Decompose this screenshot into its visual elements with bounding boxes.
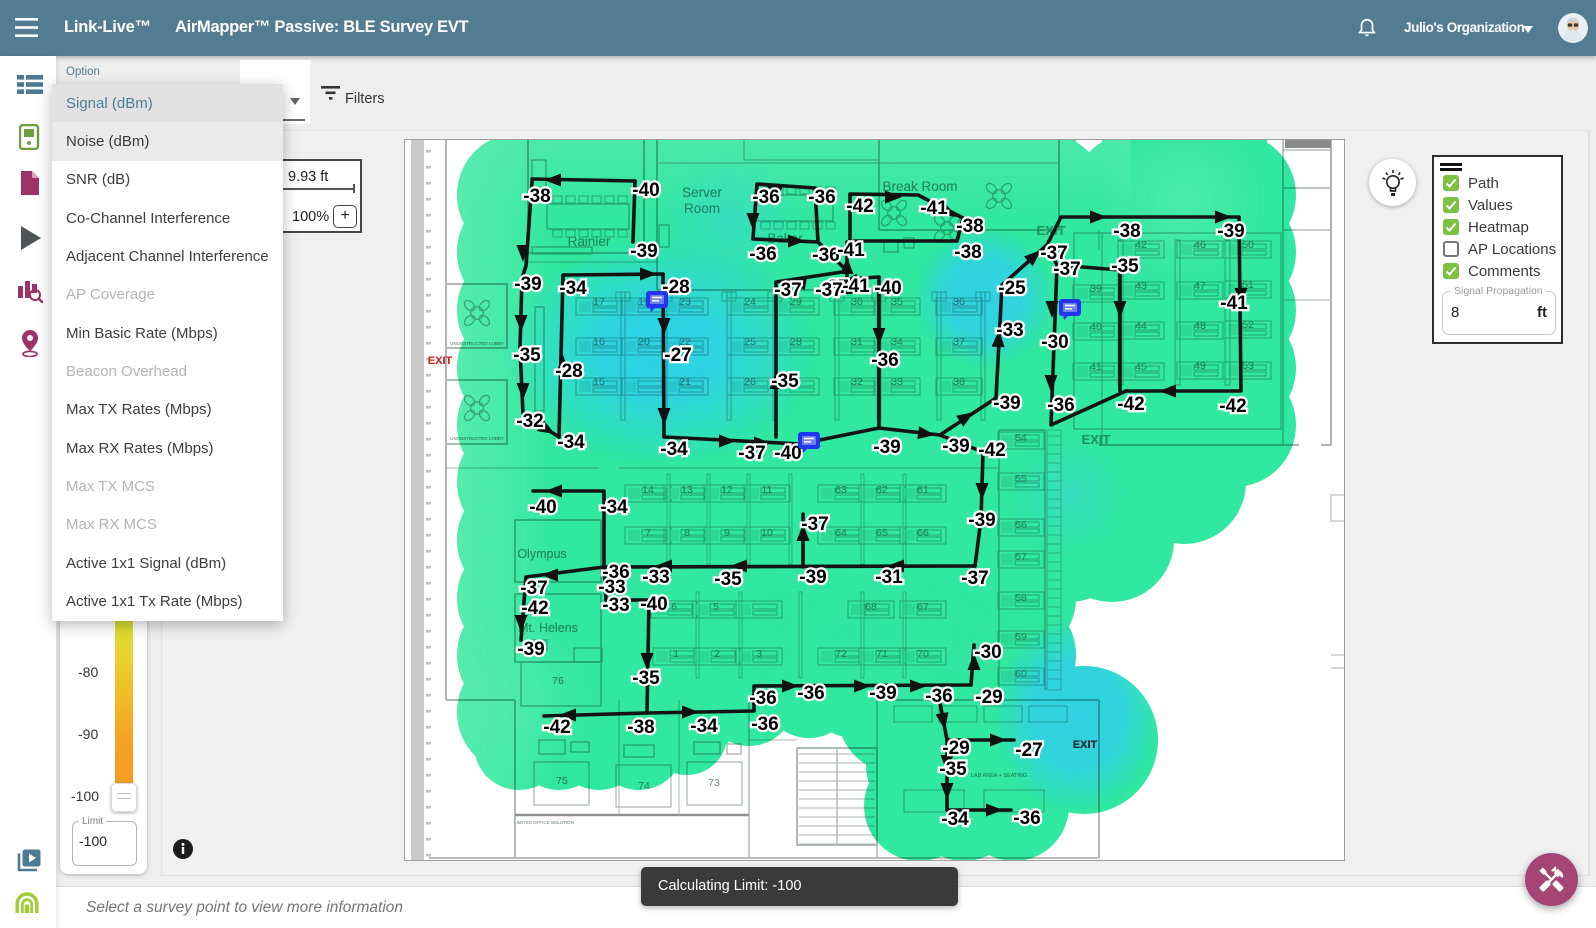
svg-text:-35: -35	[939, 759, 967, 780]
svg-text:-40: -40	[774, 443, 801, 464]
svg-text:-35: -35	[714, 569, 742, 590]
svg-text:-37: -37	[738, 443, 765, 464]
svg-text:-28: -28	[555, 361, 582, 382]
svg-text:-34: -34	[690, 716, 718, 737]
svg-text:-41: -41	[842, 276, 870, 297]
svg-text:-35: -35	[771, 371, 799, 392]
svg-text:-34: -34	[557, 432, 585, 453]
svg-text:-39: -39	[1217, 221, 1244, 242]
svg-text:-39: -39	[630, 241, 657, 262]
svg-text:-39: -39	[873, 437, 900, 458]
svg-text:-42: -42	[1117, 394, 1144, 415]
svg-text:-39: -39	[799, 567, 826, 588]
svg-text:-37: -37	[961, 568, 988, 589]
svg-text:-30: -30	[1041, 332, 1068, 353]
svg-text:-38: -38	[956, 216, 983, 237]
svg-text:-31: -31	[875, 567, 903, 588]
svg-text:-35: -35	[513, 345, 541, 366]
svg-text:-37: -37	[1053, 259, 1080, 280]
svg-text:-38: -38	[627, 717, 654, 738]
svg-text:-36: -36	[752, 187, 779, 208]
svg-text:-29: -29	[975, 687, 1002, 708]
svg-text:-33: -33	[602, 595, 629, 616]
svg-text:-38: -38	[954, 242, 981, 263]
svg-text:-42: -42	[978, 440, 1005, 461]
svg-text:-36: -36	[1047, 395, 1074, 416]
svg-text:73: 73	[708, 777, 720, 789]
svg-text:-27: -27	[664, 345, 691, 366]
svg-text:EXIT: EXIT	[428, 355, 453, 367]
svg-text:-40: -40	[632, 180, 659, 201]
svg-text:-33: -33	[642, 567, 669, 588]
svg-text:LIMITED OFFICE SOLUTION: LIMITED OFFICE SOLUTION	[514, 820, 574, 825]
svg-text:-25: -25	[998, 278, 1026, 299]
svg-text:-37: -37	[801, 514, 828, 535]
svg-text:-29: -29	[942, 738, 969, 759]
svg-text:-38: -38	[523, 186, 550, 207]
svg-text:-36: -36	[812, 245, 839, 266]
svg-text:-36: -36	[797, 683, 824, 704]
svg-text:-36: -36	[808, 187, 835, 208]
svg-text:-30: -30	[974, 642, 1001, 663]
svg-text:-36: -36	[751, 714, 778, 735]
svg-text:-37: -37	[520, 578, 547, 599]
svg-text:-39: -39	[517, 639, 544, 660]
svg-text:-40: -40	[874, 278, 901, 299]
svg-text:-36: -36	[925, 686, 952, 707]
svg-text:-36: -36	[871, 350, 898, 371]
svg-text:-39: -39	[514, 274, 541, 295]
svg-text:-32: -32	[516, 411, 543, 432]
svg-text:-34: -34	[600, 497, 628, 518]
svg-text:-38: -38	[1113, 221, 1140, 242]
svg-text:-42: -42	[543, 717, 570, 738]
svg-text:-27: -27	[1015, 740, 1042, 761]
svg-text:-36: -36	[1013, 808, 1040, 829]
svg-text:-40: -40	[529, 497, 556, 518]
svg-text:-35: -35	[632, 668, 660, 689]
svg-text:-39: -39	[993, 393, 1020, 414]
svg-text:-42: -42	[521, 598, 548, 619]
svg-text:-34: -34	[559, 278, 587, 299]
svg-text:-36: -36	[749, 688, 776, 709]
svg-text:-33: -33	[996, 320, 1023, 341]
svg-text:-41: -41	[920, 198, 948, 219]
svg-text:-37: -37	[774, 280, 801, 301]
svg-text:-39: -39	[942, 436, 969, 457]
svg-text:-42: -42	[846, 196, 873, 217]
svg-text:-41: -41	[837, 240, 865, 261]
svg-text:-41: -41	[1220, 293, 1248, 314]
svg-text:-36: -36	[749, 244, 776, 265]
svg-text:-34: -34	[941, 809, 969, 830]
svg-text:-39: -39	[869, 683, 896, 704]
svg-text:-39: -39	[968, 510, 995, 531]
svg-text:-37: -37	[815, 280, 842, 301]
svg-text:-40: -40	[640, 594, 667, 615]
svg-text:-34: -34	[660, 439, 688, 460]
svg-text:-35: -35	[1111, 256, 1139, 277]
svg-text:-42: -42	[1219, 396, 1246, 417]
